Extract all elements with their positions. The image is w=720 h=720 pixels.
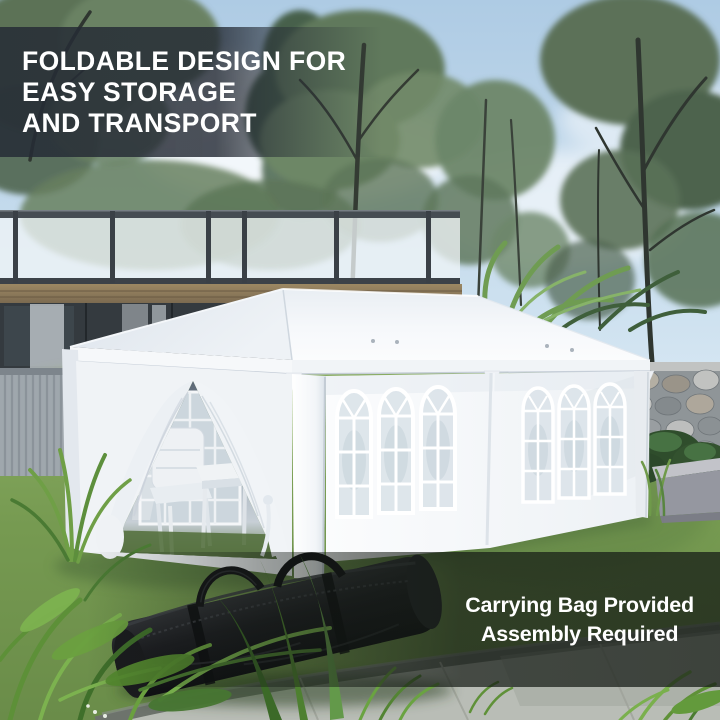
headline-line-1: FOLDABLE DESIGN FOR	[22, 46, 720, 77]
tent-window-arches-right	[523, 384, 625, 502]
product-photo: FOLDABLE DESIGN FOR EASY STORAGE AND TRA…	[0, 0, 720, 720]
headline-line-3: AND TRANSPORT	[22, 108, 720, 139]
tent-window-arches-left	[337, 387, 455, 517]
tent-leg-front	[292, 374, 326, 580]
caption-block: Carrying Bag Provided Assembly Required	[465, 591, 694, 649]
caption-line-1: Carrying Bag Provided	[465, 591, 694, 620]
headline-overlay: FOLDABLE DESIGN FOR EASY STORAGE AND TRA…	[0, 27, 720, 157]
caption-line-2: Assembly Required	[465, 620, 694, 649]
caption-overlay: Carrying Bag Provided Assembly Required	[0, 552, 720, 687]
headline-line-2: EASY STORAGE	[22, 77, 720, 108]
